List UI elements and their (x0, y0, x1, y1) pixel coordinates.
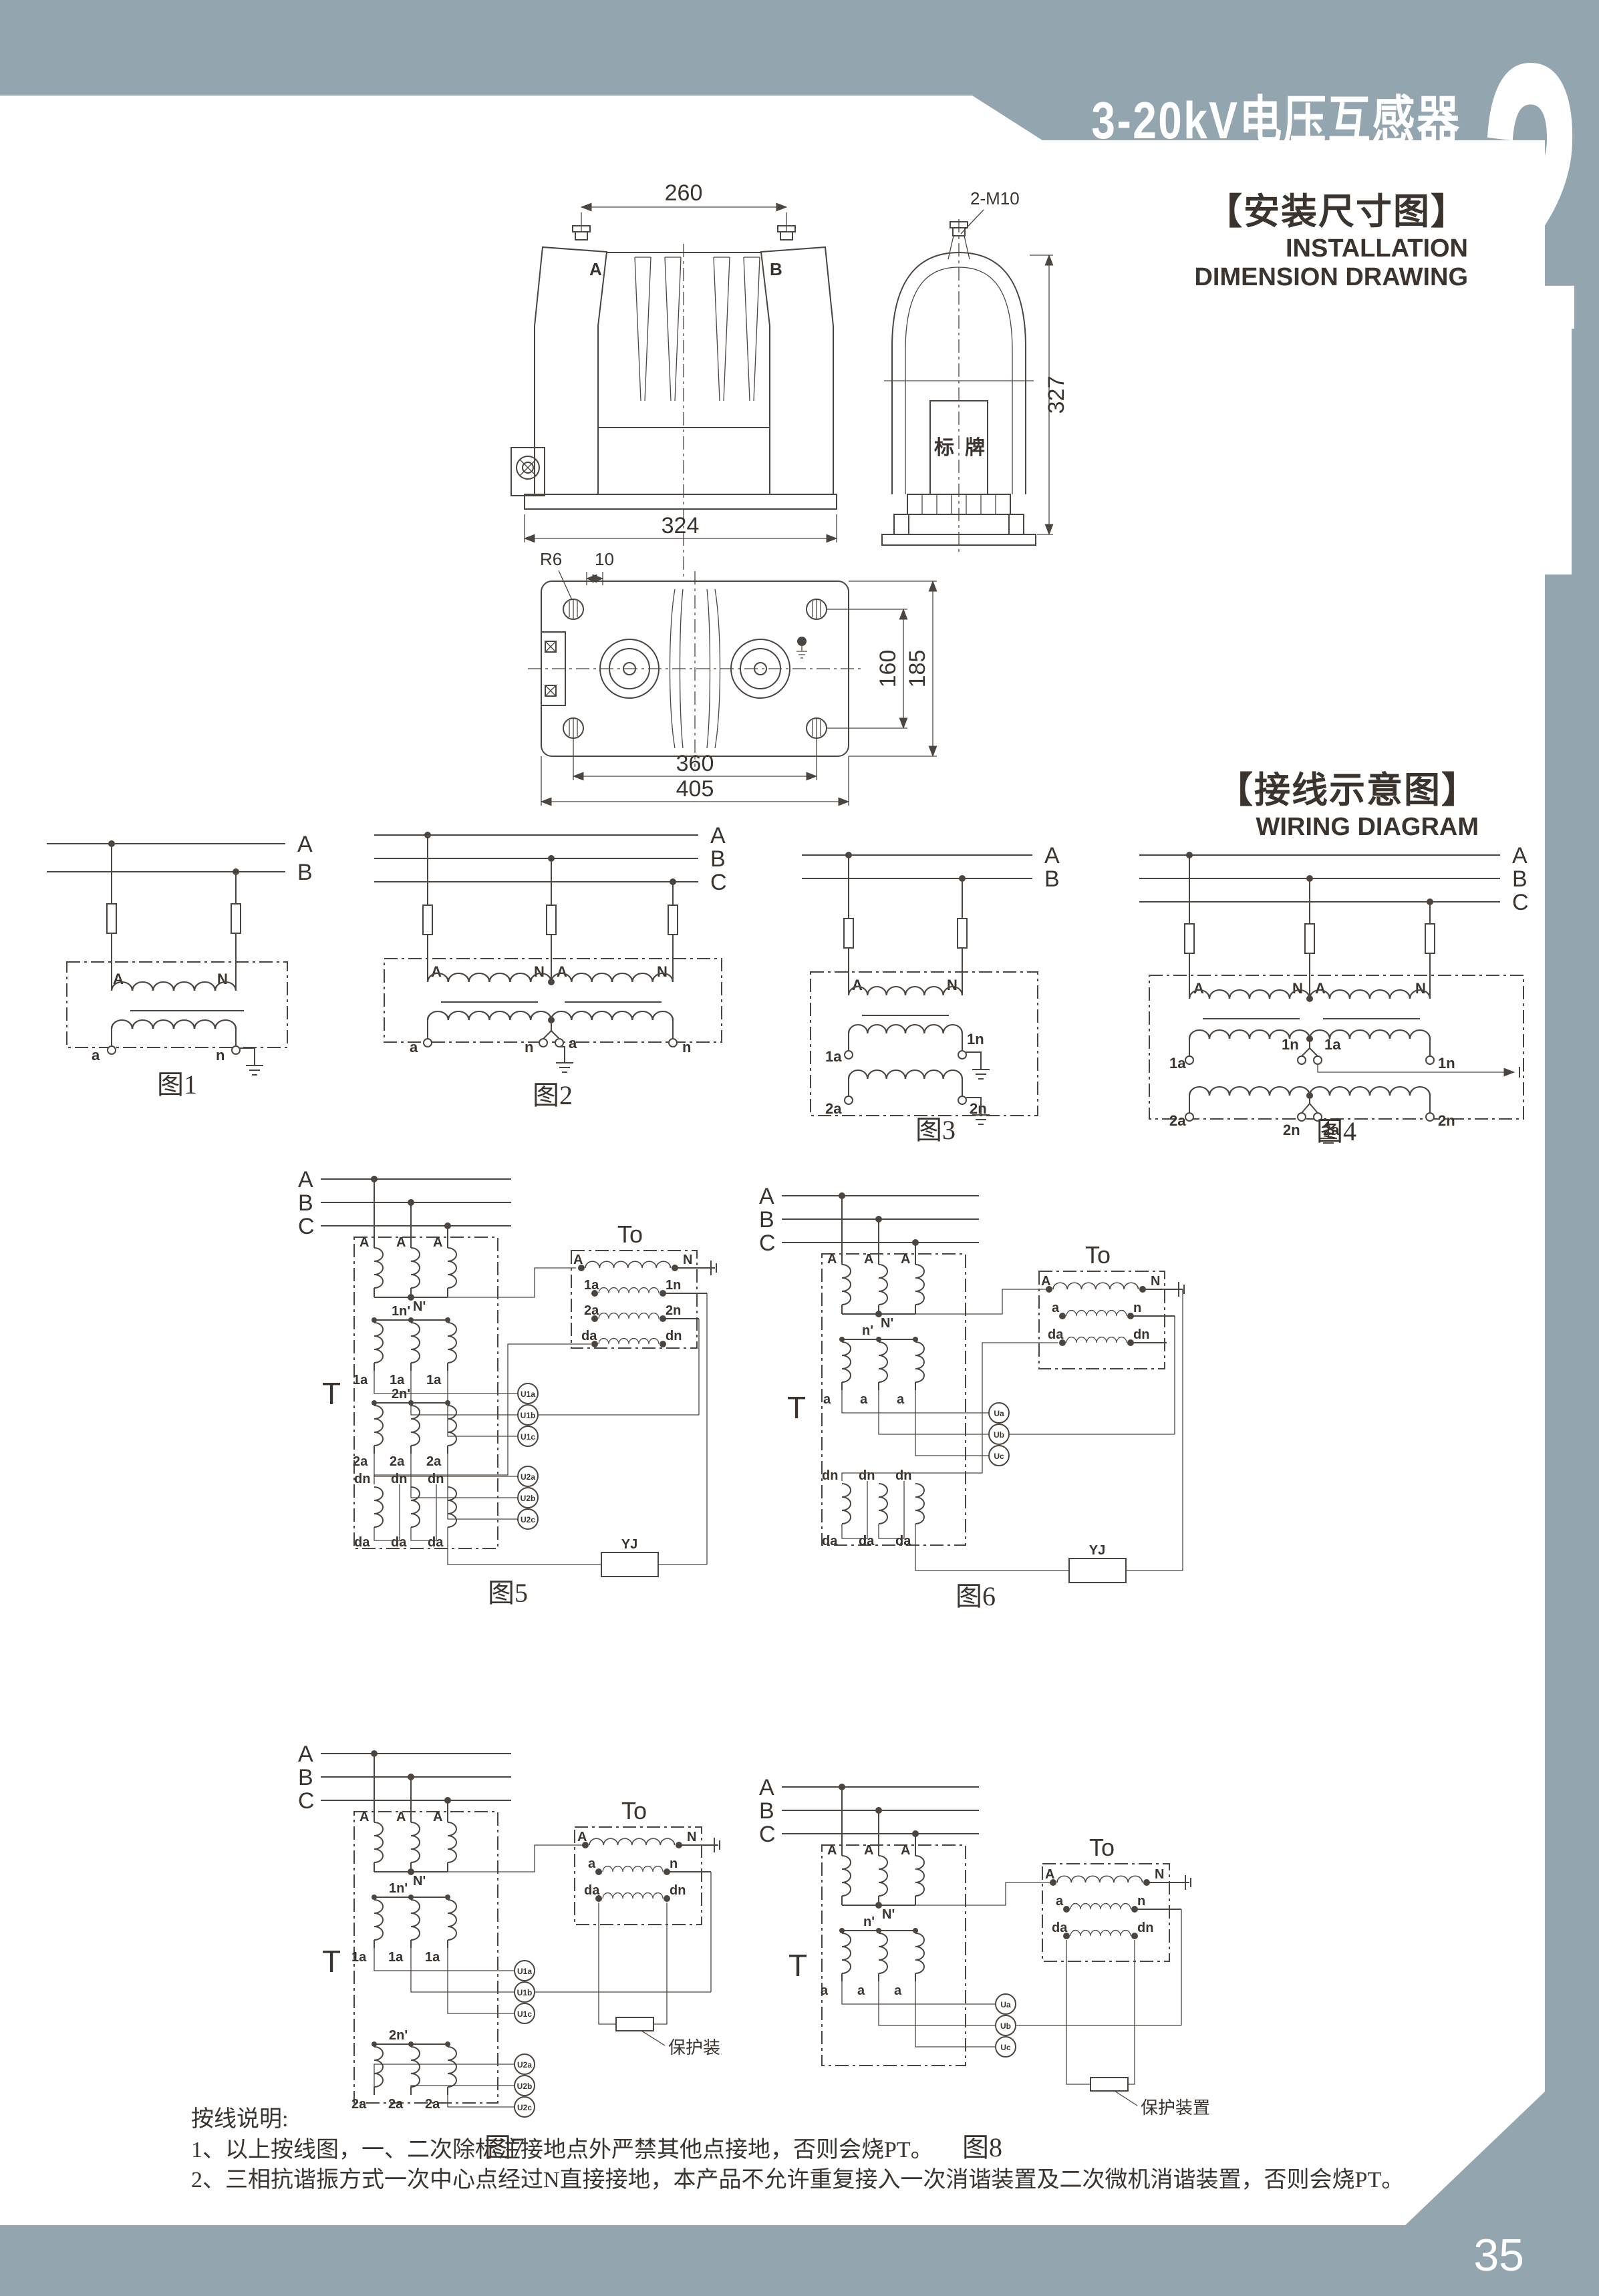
coil-label: da (859, 1534, 875, 1548)
coil-label: a (897, 1392, 905, 1407)
coil-label: 1a (353, 1373, 368, 1387)
coil-label: A (396, 1810, 406, 1824)
secondary-terminal: n (682, 1039, 691, 1055)
wiring-heading-en: WIRING DIAGRAM (1217, 813, 1479, 842)
neutral-label: N' (882, 1907, 895, 1922)
relay-label: YJ (1089, 1543, 1105, 1558)
secondary-terminal: 2a (1169, 1112, 1186, 1129)
coil-label: da (391, 1535, 407, 1550)
coil-label: A (864, 1252, 873, 1267)
meter-label: U2b (521, 1494, 536, 1503)
secondary-terminal: 1a (1324, 1036, 1341, 1053)
coil-label: A (864, 1843, 873, 1858)
dim-327: 327 (1044, 376, 1069, 414)
dim-10: 10 (595, 549, 614, 569)
transformer-label: T (322, 1944, 341, 1979)
figure-caption: 图1 (157, 1070, 197, 1099)
protection-device-label: 保护装置 (668, 2037, 722, 2058)
winding-terminal: n (1133, 1301, 1141, 1315)
winding-terminal: 2n (666, 1303, 681, 1318)
meter-label: U1a (521, 1389, 535, 1399)
chapter-number: 2 (1480, 7, 1582, 387)
neutral-label: n' (863, 1915, 875, 1929)
coil-label: 1a (425, 1950, 440, 1965)
notes-title: 按线说明: (191, 2104, 1404, 2135)
installation-heading-en2: DIMENSION DRAWING (1194, 263, 1468, 292)
coil-label: 1a (426, 1373, 442, 1387)
bus-label: C (1512, 890, 1529, 915)
coil-label: dn (354, 1472, 370, 1486)
winding-terminal: dn (666, 1329, 682, 1343)
coil-label: dn (859, 1468, 875, 1483)
aux-transformer-label: To (1089, 1834, 1115, 1861)
secondary-terminal: 1n (1438, 1055, 1455, 1072)
bus-label: A (298, 1167, 313, 1192)
neutral-label: 1n' (389, 1881, 408, 1896)
secondary-terminal: n (216, 1047, 225, 1063)
figure-7-wiring-diagram: A B C T A A A N' To A N a n da dn 1n' 1a… (287, 1737, 722, 2164)
neutral-label: n' (862, 1323, 873, 1338)
dim-405: 405 (676, 776, 714, 802)
winding-terminal: 1n (666, 1278, 681, 1293)
coil-label: A (396, 1235, 406, 1250)
installation-dimension-drawing: 260 A B 324 2-M10 标牌 (461, 180, 1149, 808)
meter-label: U2c (521, 1515, 535, 1524)
bus-label: B (298, 1765, 313, 1790)
secondary-terminal: 1a (825, 1048, 842, 1065)
winding-terminal: a (1052, 1301, 1060, 1315)
coil-label: 2a (353, 1454, 368, 1469)
primary-terminal: N (1292, 980, 1303, 997)
coil-label: dn (428, 1472, 444, 1486)
meter-label: U1b (517, 1988, 533, 1997)
coil-label: A (433, 1810, 442, 1824)
primary-terminal: A (852, 977, 863, 993)
bus-label: B (759, 1207, 774, 1233)
dim-260: 260 (665, 180, 703, 206)
coil-label: A (359, 1810, 369, 1824)
meter-label: Ub (994, 1430, 1004, 1440)
meter-label: U1b (521, 1411, 536, 1420)
bus-label: A (298, 1742, 313, 1767)
bus-label: A (710, 823, 726, 848)
bus-label: B (710, 846, 726, 872)
nameplate-label: 标牌 (934, 437, 996, 459)
winding-terminal: N (687, 1830, 696, 1844)
neutral-label: N' (413, 1874, 426, 1889)
installation-heading-zh: 【安装尺寸图】 (1194, 182, 1468, 234)
primary-terminal: A (431, 963, 442, 980)
coil-label: A (359, 1235, 369, 1250)
secondary-terminal: 1n (1282, 1036, 1299, 1053)
dim-185: 185 (905, 650, 930, 688)
secondary-terminal: 2n (1283, 1122, 1300, 1138)
coil-label: a (860, 1392, 868, 1407)
figure-3-wiring-diagram: A B A N 1a 1n 2a 2n 图3 (792, 838, 1079, 1146)
dim-360: 360 (676, 751, 714, 776)
coil-label: A (827, 1252, 837, 1267)
aux-transformer-label: To (621, 1797, 647, 1824)
plan-view: R6 10 160 185 360 405 (528, 549, 937, 806)
primary-terminal: A (1193, 980, 1204, 997)
bus-label: A (759, 1184, 774, 1209)
terminal-b-label: B (770, 259, 782, 279)
figure-2-wiring-diagram: A B C A N A N a n a n 图2 (364, 818, 742, 1112)
meter-label: Ua (1000, 2000, 1011, 2009)
bus-label: B (298, 1190, 313, 1216)
primary-terminal: N (534, 963, 545, 980)
bus-label: C (759, 1822, 776, 1847)
coil-label: da (428, 1535, 444, 1550)
coil-label: da (895, 1534, 911, 1548)
winding-terminal: 1a (584, 1278, 599, 1293)
meter-label: U2b (517, 2082, 533, 2091)
primary-terminal: N (657, 963, 668, 980)
coil-label: dn (895, 1468, 911, 1483)
meter-label: U2a (521, 1472, 535, 1482)
bus-label: B (759, 1798, 774, 1824)
bolt-spec-label: 2-M10 (970, 188, 1020, 208)
transformer-label: T (787, 1390, 806, 1425)
meter-label: U1c (517, 2009, 532, 2019)
relay-label: YJ (621, 1537, 637, 1552)
installation-section-heading: 【安装尺寸图】 INSTALLATION DIMENSION DRAWING (1194, 182, 1468, 291)
coil-label: 1a (351, 1950, 367, 1965)
winding-terminal: n (1137, 1894, 1145, 1909)
coil-label: a (857, 1983, 865, 1998)
coil-label: a (823, 1392, 831, 1407)
neutral-label: N' (881, 1316, 893, 1331)
winding-terminal: n (670, 1856, 678, 1871)
bus-label: B (1512, 866, 1528, 892)
wiring-notes: 按线说明: 1、以上按线图，一、二次除标注接地点外严禁其他点接地，否则会烧PT。… (191, 2104, 1404, 2196)
winding-terminal: dn (670, 1883, 686, 1898)
meter-label: Ua (994, 1409, 1004, 1418)
coil-label: dn (391, 1472, 407, 1486)
page-title: 3-20kV电压互感器 (1092, 79, 1461, 154)
dim-324: 324 (662, 513, 700, 538)
coil-label: a (821, 1983, 829, 1998)
meter-label: Uc (1000, 2043, 1011, 2052)
coil-label: da (354, 1535, 370, 1550)
meter-label: U2a (517, 2060, 532, 2070)
coil-label: A (433, 1235, 442, 1250)
figure-6-wiring-diagram: A B C T A A A N' To A N a n da dn n' a a… (748, 1179, 1203, 1613)
primary-terminal: N (947, 977, 958, 993)
secondary-terminal: 2a (825, 1100, 842, 1117)
figure-caption: 图4 (1316, 1116, 1356, 1146)
bus-label: A (297, 832, 313, 857)
transformer-label: T (322, 1376, 341, 1411)
bus-label: C (710, 870, 727, 895)
figure-caption: 图6 (956, 1581, 996, 1611)
figure-caption: 图2 (533, 1080, 573, 1110)
neutral-label: 1n' (392, 1304, 410, 1319)
coil-label: 2a (390, 1454, 405, 1469)
dim-160: 160 (875, 650, 901, 688)
winding-terminal: a (588, 1856, 596, 1871)
coil-label: a (894, 1983, 902, 1998)
figure-5-wiring-diagram: A B C T A A A N' To A N 1a 1n 2a 2n da d… (287, 1162, 722, 1610)
coil-label: A (827, 1843, 837, 1858)
primary-terminal: A (557, 963, 567, 980)
note-item-1: 1、以上按线图，一、二次除标注接地点外严禁其他点接地，否则会烧PT。 (191, 2135, 1404, 2166)
wiring-section-heading: 【接线示意图】 WIRING DIAGRAM (1217, 760, 1479, 842)
secondary-terminal: a (410, 1039, 418, 1055)
secondary-terminal: 1a (1169, 1055, 1186, 1072)
winding-terminal: dn (1133, 1327, 1149, 1342)
coil-label: A (901, 1252, 910, 1267)
bus-label: C (298, 1788, 315, 1814)
winding-terminal: 2a (584, 1303, 599, 1318)
neutral-label: 2n' (392, 1387, 410, 1402)
coil-label: 1a (390, 1373, 405, 1387)
figure-caption: 图3 (915, 1115, 956, 1145)
wiring-heading-zh: 【接线示意图】 (1217, 760, 1479, 813)
winding-terminal: N (1155, 1867, 1164, 1882)
figure-caption: 图5 (488, 1578, 528, 1608)
coil-label: 2a (426, 1454, 442, 1469)
coil-label: dn (822, 1468, 838, 1483)
neutral-label: 2n' (389, 2028, 408, 2043)
bus-label: A (1512, 843, 1528, 868)
coil-label: A (901, 1843, 910, 1858)
meter-label: Ub (1000, 2021, 1011, 2031)
meter-label: Uc (994, 1452, 1004, 1461)
aux-transformer-label: To (1085, 1241, 1111, 1269)
neutral-label: N' (413, 1299, 426, 1314)
note-item-2: 2、三相抗谐振方式一次中心点经过N直接接地，本产品不允许重复接入一次消谐装置及二… (191, 2165, 1404, 2196)
winding-terminal: a (1056, 1894, 1064, 1909)
front-view: 260 A B 324 (511, 180, 837, 581)
secondary-terminal: a (92, 1047, 100, 1063)
figure-4-wiring-diagram: A B C A N A N 1a 1n 1a 1n 2a 2n 2a 2n 图4 (1129, 838, 1544, 1146)
bus-label: A (759, 1775, 774, 1800)
coil-label: da (822, 1534, 838, 1548)
dim-r6: R6 (540, 549, 562, 569)
meter-label: U1a (517, 1967, 532, 1976)
bus-label: C (298, 1214, 315, 1239)
primary-terminal: N (1415, 980, 1426, 997)
coil-label: 1a (388, 1950, 404, 1965)
side-view: 2-M10 标牌 327 (882, 188, 1069, 554)
primary-terminal: A (1315, 980, 1326, 997)
winding-terminal: dn (1137, 1921, 1153, 1935)
installation-heading-en1: INSTALLATION (1194, 234, 1468, 263)
winding-terminal: N (683, 1253, 692, 1267)
meter-label: U1c (521, 1432, 535, 1442)
bus-label: C (759, 1231, 776, 1256)
secondary-terminal: a (569, 1035, 577, 1051)
transformer-label: T (788, 1948, 807, 1983)
winding-terminal: N (1151, 1274, 1160, 1289)
secondary-terminal: n (525, 1039, 533, 1055)
bus-label: B (1044, 866, 1060, 892)
bus-label: A (1044, 843, 1060, 868)
figure-1-wiring-diagram: A B A N a n 图1 (37, 825, 351, 1099)
secondary-terminal: 1n (967, 1031, 984, 1047)
aux-transformer-label: To (617, 1220, 643, 1248)
bus-label: B (297, 860, 313, 885)
page-number: 35 (1473, 2229, 1524, 2281)
secondary-terminal: 2n (1438, 1112, 1455, 1129)
terminal-a-label: A (589, 259, 602, 279)
